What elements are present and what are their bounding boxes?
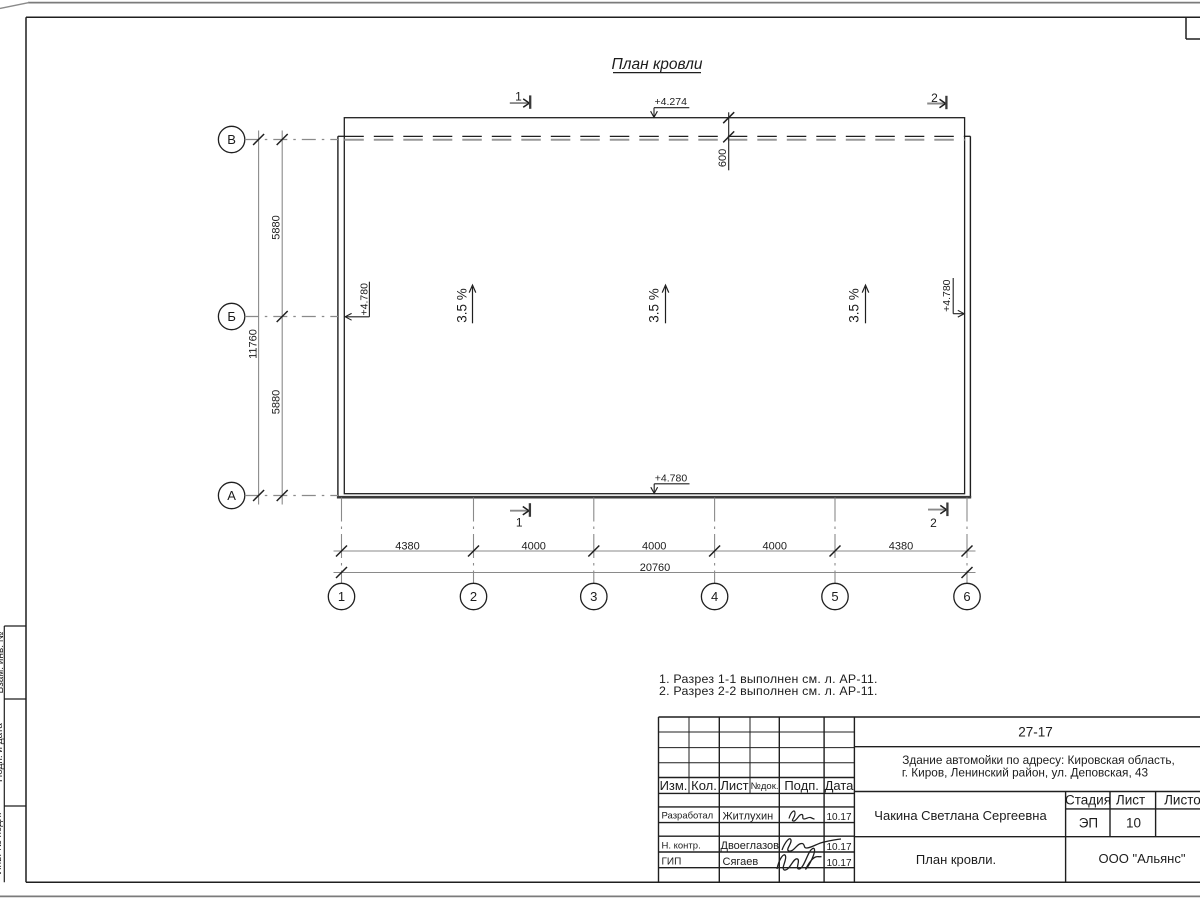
- svg-text:2. Разрез 2-2 выполнен см. л.: 2. Разрез 2-2 выполнен см. л. АР-11.: [659, 684, 878, 698]
- svg-text:Житлухин: Житлухин: [723, 810, 774, 822]
- svg-text:10: 10: [1126, 815, 1141, 830]
- svg-text:20760: 20760: [640, 562, 671, 574]
- svg-text:Б: Б: [227, 309, 236, 324]
- svg-text:Подп.: Подп.: [784, 778, 819, 793]
- svg-text:3: 3: [590, 589, 597, 604]
- svg-text:ГИП: ГИП: [662, 856, 682, 867]
- svg-text:Двоеглазов: Двоеглазов: [721, 840, 780, 852]
- svg-text:2: 2: [930, 516, 937, 530]
- svg-text:План кровли.: План кровли.: [916, 852, 996, 867]
- svg-text:10.17: 10.17: [826, 842, 851, 853]
- svg-text:5880: 5880: [271, 390, 283, 414]
- svg-text:Сягаев: Сягаев: [723, 856, 759, 868]
- svg-text:4000: 4000: [521, 540, 545, 552]
- svg-text:+4.780: +4.780: [941, 279, 953, 312]
- svg-text:Изм.: Изм.: [660, 778, 688, 793]
- svg-text:10.17: 10.17: [826, 812, 851, 823]
- svg-text:№док.: №док.: [751, 781, 779, 792]
- svg-text:10.17: 10.17: [826, 858, 851, 869]
- svg-text:Кол.: Кол.: [691, 778, 717, 793]
- svg-text:4380: 4380: [889, 540, 913, 552]
- svg-text:2: 2: [470, 589, 477, 604]
- svg-text:3.5 %: 3.5 %: [646, 288, 661, 323]
- svg-text:Разработал: Разработал: [662, 811, 714, 822]
- svg-text:+4.274: +4.274: [655, 96, 688, 108]
- svg-text:Дата: Дата: [825, 778, 855, 793]
- svg-text:Инв. № подл.: Инв. № подл.: [0, 812, 4, 874]
- svg-text:4: 4: [711, 589, 718, 604]
- svg-text:Стадия: Стадия: [1065, 793, 1111, 808]
- svg-text:11760: 11760: [247, 329, 259, 359]
- svg-text:Лист: Лист: [720, 778, 748, 793]
- svg-text:1: 1: [516, 516, 523, 530]
- svg-text:5880: 5880: [271, 215, 283, 239]
- svg-text:Н. контр.: Н. контр.: [662, 840, 701, 851]
- svg-text:ЭП: ЭП: [1079, 815, 1098, 830]
- svg-text:План кровли: План кровли: [612, 56, 703, 73]
- svg-text:3.5 %: 3.5 %: [454, 288, 469, 323]
- svg-text:г. Киров, Ленинский район, ул.: г. Киров, Ленинский район, ул. Деповская…: [902, 766, 1149, 780]
- svg-text:Листов: Листов: [1164, 793, 1200, 808]
- svg-text:А: А: [227, 488, 236, 503]
- svg-text:4380: 4380: [395, 540, 419, 552]
- svg-text:+4.780: +4.780: [655, 472, 688, 484]
- svg-text:В: В: [227, 132, 236, 147]
- svg-text:27-17: 27-17: [1018, 724, 1053, 739]
- svg-text:Подп. и дата: Подп. и дата: [0, 723, 5, 782]
- svg-text:5: 5: [831, 589, 838, 604]
- svg-text:Чакина Светлана Сергеевна: Чакина Светлана Сергеевна: [874, 808, 1047, 823]
- svg-text:Лист: Лист: [1116, 793, 1145, 808]
- svg-text:600: 600: [717, 149, 729, 167]
- svg-text:Взам. инв. №: Взам. инв. №: [0, 631, 6, 693]
- svg-text:3.5 %: 3.5 %: [846, 288, 861, 323]
- svg-text:ООО "Альянс": ООО "Альянс": [1099, 851, 1186, 866]
- svg-text:1: 1: [515, 90, 522, 104]
- svg-text:1: 1: [338, 589, 345, 604]
- svg-text:4000: 4000: [763, 540, 787, 552]
- svg-text:4000: 4000: [642, 540, 666, 552]
- svg-text:6: 6: [963, 589, 970, 604]
